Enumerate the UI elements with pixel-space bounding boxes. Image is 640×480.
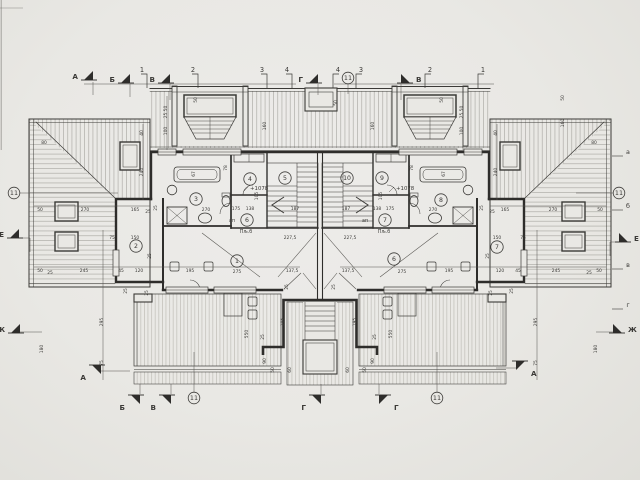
chimney bbox=[305, 88, 337, 111]
section-marker-triangle bbox=[11, 324, 20, 333]
dimension-label: 25 bbox=[123, 288, 129, 294]
blueprint-sheet: 5027016525251652705050252454512019527513… bbox=[0, 0, 640, 480]
dimension-label: 195 bbox=[445, 268, 454, 274]
dimension-label: 25 bbox=[479, 205, 485, 211]
dimension-label: 25 bbox=[260, 334, 266, 340]
axis-letter: г bbox=[626, 301, 630, 309]
dimension-label: 75 bbox=[109, 235, 115, 241]
grid-axis-number: 1 bbox=[481, 66, 485, 74]
dimension-label: 50 bbox=[596, 268, 602, 274]
dimension-label: 175 bbox=[386, 206, 395, 212]
section-marker-triangle bbox=[309, 74, 318, 83]
room-number: 3 bbox=[194, 196, 198, 203]
dimension-label: 100 bbox=[163, 127, 169, 136]
dimension-label: 245 bbox=[80, 268, 89, 274]
section-letter: А bbox=[72, 72, 78, 81]
room-number: 10 bbox=[343, 175, 351, 182]
chair bbox=[170, 262, 179, 271]
dimension-label: 180 bbox=[39, 345, 45, 354]
dimension-label: 105 bbox=[254, 192, 260, 201]
boiler bbox=[167, 185, 177, 195]
left-wing-roof bbox=[29, 119, 150, 287]
washbasin bbox=[199, 213, 212, 223]
elevation-label: +1078 bbox=[396, 186, 415, 192]
axis-letter: а bbox=[626, 148, 630, 156]
grid-axis-tick bbox=[356, 74, 362, 88]
room-number: 7 bbox=[495, 244, 499, 251]
dimension-label: 160 bbox=[560, 119, 566, 128]
grid-axis-number: 3 bbox=[260, 66, 264, 74]
section-marker-triangle bbox=[10, 229, 19, 238]
dimension-label: 80 bbox=[41, 140, 47, 146]
north-outer-wall bbox=[151, 152, 489, 199]
dimension-label: 165 bbox=[131, 207, 140, 213]
dimension-label: 137,5 bbox=[286, 268, 299, 274]
grid-axis-number: 3 bbox=[359, 66, 363, 74]
dimension-label: 195 bbox=[352, 318, 358, 327]
dimension-label: 50 bbox=[597, 207, 603, 213]
grid-axis-tick bbox=[425, 74, 431, 88]
grid-axis-tick bbox=[333, 74, 339, 88]
dimension-label: 25 bbox=[331, 284, 337, 290]
dimension-label: 137,5 bbox=[342, 268, 355, 274]
dimension-label: 150 bbox=[493, 235, 502, 241]
section-letter: А bbox=[80, 373, 86, 382]
room-number: 4 bbox=[248, 176, 252, 183]
section-letter: В bbox=[150, 75, 155, 84]
dimension-label: 75 bbox=[533, 360, 539, 366]
section-letter: Г bbox=[394, 403, 399, 412]
right-terrace-deck bbox=[359, 294, 506, 366]
dimension-label: 550 bbox=[244, 330, 250, 339]
dimension-label: 25 bbox=[145, 209, 151, 215]
dimension-label: 138 bbox=[373, 206, 382, 212]
text-note: ап bbox=[362, 219, 368, 224]
grid-axis-number: 2 bbox=[428, 66, 432, 74]
room-number: 1 bbox=[235, 258, 239, 265]
grid-axis-tick bbox=[286, 74, 292, 88]
dimension-label: 240 bbox=[493, 168, 499, 177]
dimension-label: 187 bbox=[291, 206, 300, 212]
dimension-label: 240 bbox=[139, 168, 145, 177]
dimension-label: 50 bbox=[362, 367, 368, 373]
axis-letter: б bbox=[626, 202, 630, 210]
stair-direction-arrow bbox=[356, 197, 368, 213]
dimension-label: 50 bbox=[439, 97, 445, 103]
text-note: Пљ.б bbox=[378, 229, 390, 235]
left-bathroom-fixtures bbox=[167, 167, 230, 224]
dimension-label: 40 bbox=[493, 130, 499, 136]
section-marker-triangle bbox=[161, 74, 170, 83]
section-letter: Е bbox=[0, 230, 4, 239]
section-letter: В bbox=[416, 75, 421, 84]
dimension-label: 50 bbox=[270, 367, 276, 373]
dimension-label: 25 bbox=[485, 253, 491, 259]
right-eave-band bbox=[359, 372, 506, 384]
dimension-label: 295 bbox=[533, 318, 539, 327]
section-marker-triangle bbox=[121, 74, 130, 83]
dimension-label: 25 bbox=[489, 209, 495, 215]
dimension-label: 67 bbox=[441, 171, 447, 177]
dimension-label: 25 bbox=[586, 270, 592, 276]
dimension-label: 25 bbox=[47, 270, 53, 276]
section-marker-triangle bbox=[131, 395, 140, 404]
section-letter: А bbox=[531, 369, 537, 378]
dimension-label: 25 bbox=[509, 288, 515, 294]
dimension-label: 50 bbox=[193, 97, 199, 103]
dimension-label: 160 bbox=[370, 122, 376, 131]
section-letter: Ж bbox=[0, 325, 5, 334]
room-number: 6 bbox=[245, 217, 249, 224]
dimension-label: 195 bbox=[186, 268, 195, 274]
room-number: 6 bbox=[392, 256, 396, 263]
dimension-label: 40 bbox=[139, 130, 145, 136]
dimension-label: 165 bbox=[501, 207, 510, 213]
text-note: ап bbox=[229, 219, 235, 224]
dimension-label: 105 bbox=[378, 192, 384, 201]
section-letter: Ж bbox=[628, 325, 637, 334]
section-letter: Г bbox=[301, 403, 306, 412]
door-swings bbox=[190, 185, 450, 290]
dimension-label: 80 bbox=[591, 140, 597, 146]
detail-callout-number: 11 bbox=[10, 189, 18, 197]
paper-artifacts bbox=[0, 0, 23, 150]
dimension-label: 67 bbox=[191, 171, 197, 177]
section-marker-triangle bbox=[312, 395, 321, 404]
dimension-label: 138 bbox=[246, 206, 255, 212]
grid-axis-tick bbox=[478, 74, 484, 88]
dimension-label: 550 bbox=[388, 330, 394, 339]
terraces bbox=[134, 294, 506, 385]
dimension-label: 25 bbox=[488, 290, 494, 296]
dimension-label: 227,5 bbox=[284, 235, 297, 241]
dimension-label: 25 bbox=[372, 334, 378, 340]
section-marker-triangle bbox=[84, 71, 93, 80]
dimension-label: 25 50 bbox=[163, 106, 169, 119]
section-marker-triangle bbox=[162, 395, 171, 404]
dimension-label: 90 bbox=[262, 358, 268, 364]
dimension-label: 275 bbox=[233, 269, 242, 275]
room-number: 7 bbox=[383, 217, 387, 224]
grid-axis-tick bbox=[141, 74, 147, 88]
dimension-label: 120 bbox=[496, 268, 505, 274]
dimension-label: 50 bbox=[37, 268, 43, 274]
side-window bbox=[521, 250, 527, 276]
dimension-label: 187 bbox=[342, 206, 351, 212]
elevation-label: +1078 bbox=[250, 186, 269, 192]
grid-axis-number: 2 bbox=[191, 66, 195, 74]
section-marker-triangle bbox=[619, 233, 628, 242]
dimension-label: 195 bbox=[280, 318, 286, 327]
dimension-label: 245 bbox=[552, 268, 561, 274]
left-terrace-deck bbox=[134, 294, 281, 366]
axis-letter: в bbox=[626, 261, 630, 269]
dimension-label: 25 bbox=[284, 284, 290, 290]
section-marker-triangle bbox=[516, 361, 525, 370]
chair bbox=[461, 262, 470, 271]
floor-plan-drawing: 5027016525251652705050252454512019527513… bbox=[0, 0, 640, 480]
chair bbox=[204, 262, 213, 271]
dimension-label: 175 bbox=[232, 206, 241, 212]
dimension-label: 60 bbox=[345, 367, 351, 373]
left-dormer bbox=[172, 86, 248, 146]
washbasin bbox=[429, 213, 442, 223]
dimension-label: 275 bbox=[398, 269, 407, 275]
dimension-label: 45 bbox=[118, 268, 124, 274]
entry-stoop bbox=[303, 340, 337, 374]
detail-callout-number: 11 bbox=[190, 394, 198, 402]
section-marker-triangle bbox=[613, 324, 622, 333]
section-marker-triangle bbox=[92, 365, 101, 374]
dimension-label: 78 bbox=[223, 165, 229, 171]
grid-axis-number: 4 bbox=[285, 66, 289, 74]
dimension-label: 50 bbox=[37, 207, 43, 213]
left-staircase bbox=[267, 163, 318, 227]
grid-axis-number: 4 bbox=[336, 66, 340, 74]
dimension-label: 90 bbox=[370, 358, 376, 364]
dimension-label: 270 bbox=[429, 207, 438, 213]
grid-axis-tick bbox=[261, 74, 267, 88]
grid-axis-tick bbox=[192, 74, 198, 88]
section-letter: В bbox=[151, 403, 156, 412]
dimension-label: 25 bbox=[144, 290, 150, 296]
room-number: 9 bbox=[380, 175, 384, 182]
dimension-label: 227,5 bbox=[344, 235, 357, 241]
detail-callout-number: 11 bbox=[433, 394, 441, 402]
dimension-label: 45 bbox=[515, 268, 521, 274]
section-letter: Е bbox=[634, 234, 639, 243]
dimension-label: 75 bbox=[520, 235, 526, 241]
detail-callout-number: 11 bbox=[615, 189, 623, 197]
dimension-label: 120 bbox=[135, 268, 144, 274]
dimension-label: 78 bbox=[409, 165, 415, 171]
section-letter: Б bbox=[110, 75, 115, 84]
dimension-label: 50 bbox=[333, 100, 339, 106]
dimension-label: 25 bbox=[147, 253, 153, 259]
dimension-label: 270 bbox=[549, 207, 558, 213]
left-eave-band bbox=[134, 372, 281, 384]
section-letter: Б bbox=[120, 403, 125, 412]
section-marker-triangle bbox=[379, 395, 388, 404]
dimension-label: 180 bbox=[593, 345, 599, 354]
text-note: Пљ.б bbox=[240, 229, 252, 235]
right-staircase bbox=[322, 163, 373, 227]
section-marker-triangle bbox=[401, 74, 410, 83]
dimension-label: 270 bbox=[81, 207, 90, 213]
boiler bbox=[463, 185, 473, 195]
section-letter: Г bbox=[298, 75, 303, 84]
chair bbox=[427, 262, 436, 271]
detail-callout-number: 11 bbox=[344, 74, 352, 82]
room-number: 8 bbox=[439, 197, 443, 204]
room-number: 2 bbox=[134, 243, 138, 250]
dimension-label: 50 bbox=[560, 95, 566, 101]
grid-axis-number: 1 bbox=[140, 66, 144, 74]
dimension-label: 160 bbox=[262, 122, 268, 131]
right-dormer bbox=[392, 86, 468, 146]
dimension-label: 270 bbox=[202, 207, 211, 213]
dimension-label: 295 bbox=[99, 318, 105, 327]
windows bbox=[113, 149, 527, 293]
stair-direction-arrow bbox=[272, 197, 284, 213]
dimension-label: 25 50 bbox=[459, 106, 465, 119]
dimension-label: 100 bbox=[459, 127, 465, 136]
room-number: 5 bbox=[283, 175, 287, 182]
dimension-label: 25 bbox=[153, 205, 159, 211]
dimension-label: 60 bbox=[287, 367, 293, 373]
